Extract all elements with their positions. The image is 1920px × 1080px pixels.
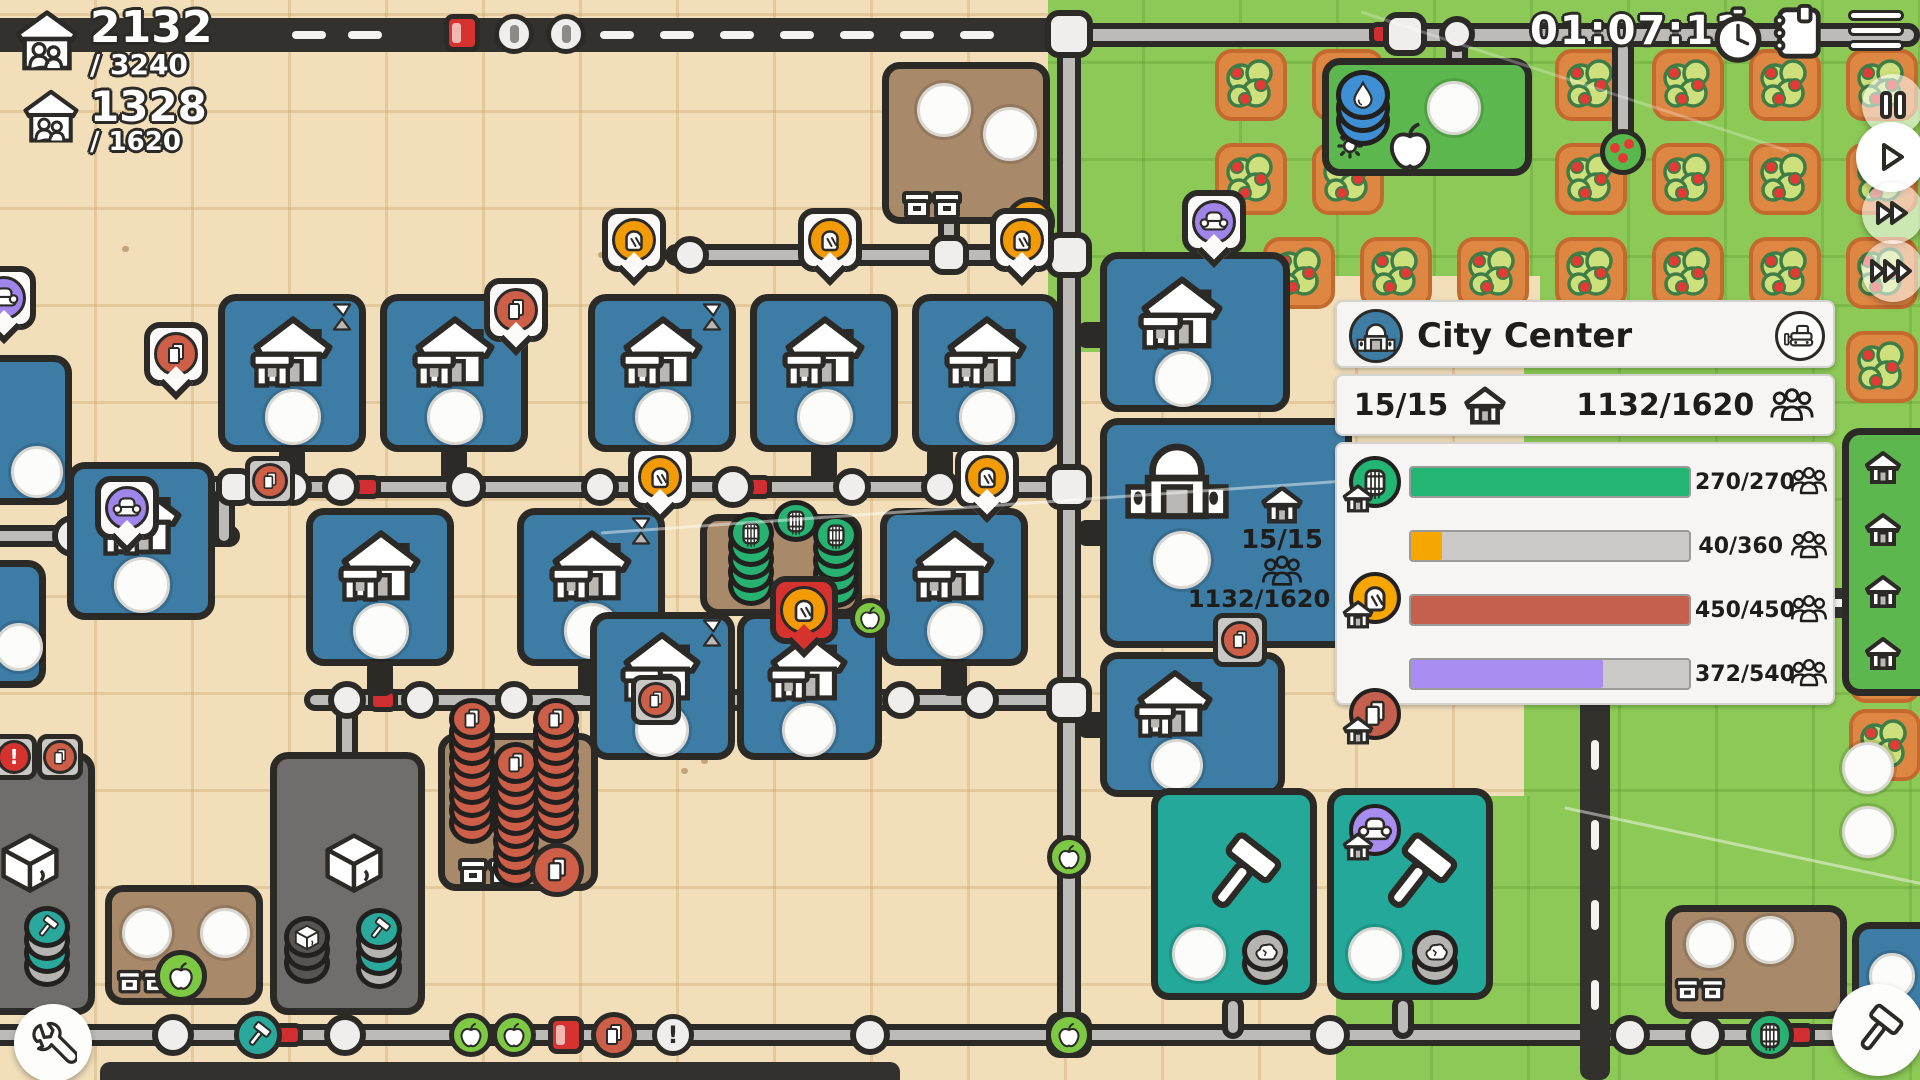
population-value: 2132 (90, 6, 212, 50)
house-icon (619, 309, 707, 389)
paper-demand-bubble[interactable] (144, 322, 208, 386)
house-icon (943, 309, 1031, 389)
worker-slot (1348, 927, 1402, 981)
build-button[interactable] (1832, 984, 1920, 1076)
city-center-icon (1349, 309, 1403, 363)
road-node[interactable] (1685, 1015, 1725, 1055)
veggie-badge (1600, 129, 1646, 175)
housing-tile[interactable] (880, 508, 1028, 666)
stat-population: 1132/1620 (1576, 388, 1754, 423)
road-node[interactable] (1046, 677, 1092, 723)
panel-header: City Center (1335, 300, 1835, 368)
paper-coin-stack (449, 698, 495, 848)
alert-demand-badge: ! (0, 734, 37, 780)
city-buildings-label: 15/15 (1235, 525, 1329, 555)
paper-badge (591, 1012, 637, 1058)
road-dash (720, 31, 754, 39)
house-icon (1863, 511, 1903, 547)
city-center-panel: City Center 15/15 1132/1620 270/270 40/3… (1335, 300, 1835, 705)
farm-plot[interactable] (1845, 330, 1919, 404)
wrench-icon (29, 1019, 77, 1067)
people-icon (1259, 555, 1305, 587)
cube-icon (0, 829, 63, 895)
barrel-need-bar (1409, 466, 1691, 498)
road-node[interactable] (1610, 1015, 1650, 1055)
worker-slot (927, 603, 983, 659)
house-icon (1341, 598, 1375, 630)
house-icon (1137, 269, 1227, 351)
road-node[interactable] (152, 1014, 194, 1056)
housing-counter: 1328 / 1620 (22, 86, 207, 156)
bulldozer-icon (1782, 322, 1818, 350)
road-dash (960, 31, 994, 39)
road-node[interactable] (929, 235, 969, 275)
bread-demand-bubble[interactable] (798, 208, 862, 272)
rock-coin-stack (1242, 930, 1288, 1000)
road-node[interactable] (882, 681, 920, 719)
hammer-badge (234, 1011, 282, 1059)
worker-slot (1172, 927, 1226, 981)
road-dash (900, 31, 934, 39)
ground-speck (681, 768, 688, 774)
couch-demand-bubble[interactable] (1182, 190, 1246, 254)
delivery-vehicle (548, 1016, 584, 1054)
hammer-icon (1846, 998, 1910, 1062)
pause-icon (1878, 90, 1908, 120)
house-people-icon (14, 6, 80, 72)
apple-badge (449, 1013, 493, 1057)
road-node[interactable] (328, 681, 366, 719)
road[interactable] (1392, 995, 1414, 1039)
apple-badge (155, 950, 207, 1002)
house-icon (1462, 384, 1508, 426)
bin-icon (901, 185, 963, 221)
barrel-need-value: 270/270 (1695, 470, 1783, 495)
road-node[interactable] (961, 681, 999, 719)
output-slot (122, 908, 172, 958)
barrel-badge (1746, 1011, 1794, 1059)
panel-needs: 270/270 40/360 450/450 372/540 (1335, 442, 1835, 705)
bread-demand-bubble[interactable] (955, 445, 1019, 509)
paper-need-value: 450/450 (1695, 598, 1783, 623)
toll-gate[interactable] (546, 14, 586, 54)
housing-tile[interactable] (1100, 652, 1285, 797)
people-icon (1789, 530, 1829, 560)
game-viewport: 15/15 1132/1620 (0, 0, 1920, 1080)
bin-icon (1674, 972, 1726, 1004)
housing-tile[interactable] (218, 294, 366, 452)
highway-bottom-edge[interactable] (100, 1062, 900, 1080)
road-dash (840, 31, 874, 39)
road-node[interactable] (1383, 12, 1427, 56)
housing-tile[interactable] (1100, 252, 1290, 412)
couch-demand-bubble[interactable] (95, 476, 159, 540)
rock-coin-stack (1412, 930, 1458, 1000)
output-slot (1746, 916, 1794, 964)
road-dash (1591, 820, 1599, 850)
couch-need-fill (1411, 660, 1603, 688)
city-population-label: 1132/1620 (1179, 585, 1339, 613)
road-node[interactable] (1310, 1015, 1350, 1055)
people-icon (1768, 387, 1816, 423)
output-slot (917, 83, 971, 137)
paper-demand-badge (245, 456, 295, 506)
paper-demand-badge (37, 734, 83, 780)
worker-slot (353, 603, 409, 659)
road-node[interactable] (671, 236, 709, 274)
road[interactable] (1222, 995, 1244, 1039)
delivery-vehicle (444, 14, 480, 52)
road-dash (780, 31, 814, 39)
menu-button[interactable] (1848, 10, 1908, 62)
worker-slot (265, 389, 321, 445)
road-node[interactable] (921, 468, 959, 506)
people-icon (1789, 466, 1829, 496)
couch-demand-bubble[interactable] (0, 266, 36, 330)
worker-slot (1842, 742, 1894, 794)
water-coin-stack (1336, 70, 1390, 170)
workshop-tile[interactable] (1151, 788, 1317, 1000)
house-icon (781, 309, 869, 389)
house-icon (1259, 483, 1305, 525)
ground-speck (122, 246, 129, 252)
road-dash (1591, 740, 1599, 770)
road-node[interactable] (1045, 10, 1093, 58)
worker-slot (959, 389, 1015, 445)
hourglass-icon (331, 301, 353, 333)
farm-plot[interactable] (1359, 236, 1433, 310)
housing-tile[interactable] (750, 294, 898, 452)
house-icon (337, 523, 425, 603)
barrel-coin-stack (728, 512, 774, 612)
apple-badge (850, 598, 890, 638)
population-cap: / 3240 (90, 50, 212, 80)
play-icon (1874, 140, 1908, 174)
housing-tile[interactable] (306, 508, 454, 666)
house-icon (1341, 830, 1375, 862)
farm-plot[interactable] (1651, 142, 1725, 216)
housing-tile[interactable] (0, 355, 72, 505)
house-icon (1863, 635, 1903, 671)
farm-plot[interactable] (1748, 142, 1822, 216)
paper-need-bar (1409, 594, 1691, 626)
paper-demand-bubble[interactable] (484, 278, 548, 342)
house-icon (548, 523, 636, 603)
worker-slot (782, 703, 836, 757)
journal-button[interactable] (1768, 4, 1826, 62)
fast-forward-icon (1874, 198, 1912, 228)
road-node[interactable] (324, 1014, 366, 1056)
bread-demand-bubble[interactable] (628, 445, 692, 509)
paper-demand-badge (631, 675, 681, 725)
road-node[interactable] (1046, 464, 1092, 510)
road-node[interactable] (712, 466, 754, 508)
output-slot (200, 908, 250, 958)
road-node[interactable] (401, 681, 439, 719)
housing-cap: / 1620 (90, 128, 207, 156)
hammer-coin-stack (24, 906, 70, 996)
cube-coin-stack (284, 916, 330, 996)
barrel-need-fill (1411, 468, 1689, 496)
worker-slot (797, 389, 853, 445)
road-node[interactable] (850, 1015, 890, 1055)
worker-slot (11, 446, 63, 498)
hammer-icon (1188, 823, 1292, 927)
demolish-button[interactable] (1775, 311, 1825, 361)
fastest-forward-icon (1869, 256, 1917, 286)
housing-value: 1328 (90, 86, 207, 128)
paper-need-fill (1411, 596, 1689, 624)
paper-need-icon (1349, 688, 1401, 740)
apple-badge (492, 1013, 536, 1057)
housing-tile[interactable] (588, 294, 736, 452)
road-dash (1591, 900, 1599, 930)
worker-slot (635, 389, 691, 445)
farm-plot[interactable] (1651, 236, 1725, 310)
road-node[interactable] (495, 681, 533, 719)
worker-slot (427, 389, 483, 445)
bread-need-value: 40/360 (1695, 534, 1783, 559)
house-icon (1133, 663, 1217, 739)
settings-button[interactable] (14, 1004, 92, 1080)
output-slot (983, 107, 1037, 161)
people-icon (1789, 594, 1829, 624)
city-center-icon (1121, 427, 1233, 527)
storage-tile-factory[interactable] (882, 62, 1050, 224)
couch-need-value: 372/540 (1695, 662, 1783, 687)
worker-slot (0, 623, 43, 671)
menu-icon (1848, 10, 1904, 21)
couch-need-bar (1409, 658, 1691, 690)
storage-tile[interactable] (1665, 905, 1847, 1019)
apple-badge (1046, 1012, 1092, 1058)
farm-plot[interactable] (1554, 236, 1628, 310)
road-dash (1591, 980, 1599, 1010)
farm-plot[interactable] (1214, 48, 1288, 122)
worker-slot (1153, 531, 1211, 589)
hourglass-icon (701, 617, 723, 649)
road-dash (660, 31, 694, 39)
house-icon (1863, 449, 1903, 485)
apple-badge (1047, 835, 1091, 879)
paper-badge (530, 843, 584, 897)
timer-clock-icon (1712, 6, 1764, 64)
couch-need-icon (1349, 804, 1401, 856)
house-icon (911, 523, 999, 603)
road-dash (348, 31, 382, 39)
bread-demand-bubble[interactable] (990, 208, 1054, 272)
cube-icon (321, 829, 387, 895)
house-icon (1341, 714, 1375, 746)
paper-coin-stack (533, 698, 579, 848)
housing-tile[interactable] (912, 294, 1060, 452)
house-icon (1863, 573, 1903, 609)
panel-stats: 15/15 1132/1620 (1335, 374, 1835, 436)
worker-slot (1151, 739, 1203, 791)
housing-tile-small[interactable] (1842, 428, 1920, 696)
selected-demand-bubble[interactable] (770, 576, 838, 644)
bread-demand-bubble[interactable] (602, 208, 666, 272)
population-counter: 2132 / 3240 (14, 6, 212, 80)
road-node[interactable] (581, 468, 619, 506)
people-icon (1789, 658, 1829, 688)
road-node[interactable] (833, 468, 871, 506)
road-dash (292, 31, 326, 39)
worker-slot (1155, 351, 1211, 407)
farm-plot[interactable] (1456, 236, 1530, 310)
worker-slot (1842, 806, 1894, 858)
panel-title: City Center (1417, 316, 1632, 356)
road-node[interactable] (446, 467, 486, 507)
alert-badge: ! (652, 1014, 694, 1056)
bread-need-icon (1349, 572, 1401, 624)
bread-need-fill (1411, 532, 1442, 560)
house-people-icon (22, 86, 80, 144)
farm-plot[interactable] (1748, 236, 1822, 310)
road-node[interactable] (322, 468, 360, 506)
housing-tile[interactable] (0, 560, 46, 688)
toll-gate[interactable] (494, 14, 534, 54)
hourglass-icon (701, 301, 723, 333)
road-dash (600, 31, 634, 39)
hammer-coin-stack (356, 908, 402, 998)
bread-need-bar (1409, 530, 1691, 562)
barrel-need-icon (1349, 456, 1401, 508)
paper-demand-badge (1213, 613, 1267, 667)
house-icon (1341, 482, 1375, 514)
output-slot (1686, 920, 1734, 968)
fast-forward-button[interactable] (1862, 182, 1920, 244)
fastest-forward-button[interactable] (1862, 240, 1920, 302)
stat-buildings: 15/15 (1354, 388, 1448, 423)
worker-slot (114, 557, 170, 613)
house-icon (249, 309, 337, 389)
